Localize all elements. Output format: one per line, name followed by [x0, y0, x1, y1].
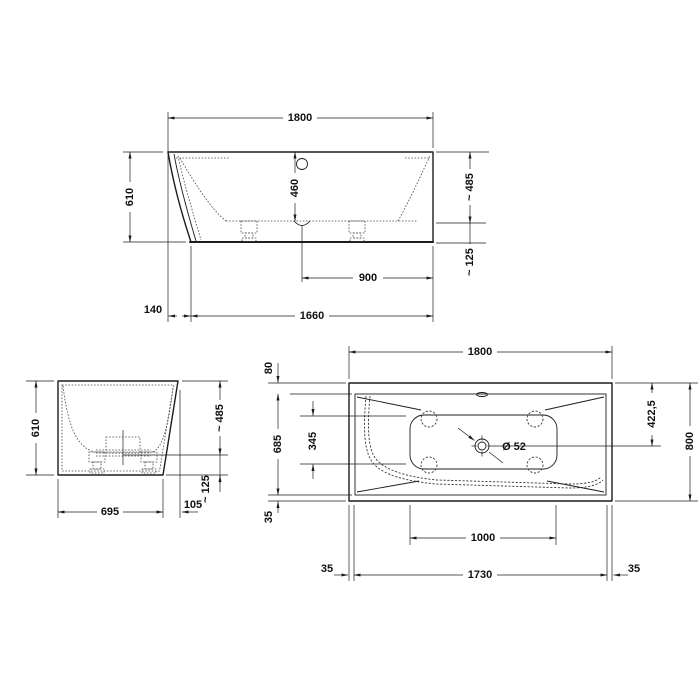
side-length-dim: 1800: [288, 112, 312, 124]
adjustable-foot: [241, 221, 257, 242]
drain-recess: [294, 221, 310, 226]
sloped-front-edge: [168, 152, 191, 242]
inner-wall-left: [180, 158, 226, 221]
end-view-tub-outline: [58, 381, 228, 475]
plan-view-tub-outline: Ø 52: [349, 383, 612, 501]
drain-diameter-label: Ø 52: [502, 441, 526, 453]
end-view: 610 ~ 485 ~ 125 695 105: [26, 381, 228, 518]
drain-leader: [458, 428, 475, 441]
plan-view: Ø 52 1800: [263, 346, 698, 581]
plan-width-dim: 800: [684, 432, 696, 450]
drain-icon: [472, 436, 493, 457]
side-view-tub-outline: [168, 152, 433, 282]
end-side-offset-dim: 105: [184, 499, 202, 511]
side-clearance-dim: ~ 125: [464, 248, 476, 276]
plan-margin-left-dim: 35: [321, 563, 333, 575]
side-rim-height-dim: ~ 485: [464, 173, 476, 201]
side-view: 1800 610 460 ~ 485: [123, 112, 489, 322]
end-rim-height-dim: ~ 485: [214, 404, 226, 432]
side-height-dim: 610: [124, 188, 136, 206]
support-foot: [421, 411, 437, 427]
end-view-dimensions: 610 ~ 485 ~ 125 695 105: [26, 381, 228, 518]
plan-inner-length-dim: 685: [272, 435, 284, 453]
plan-drain-offset-dim: 422,5: [646, 400, 658, 428]
support-foot: [527, 411, 543, 427]
end-height-dim: 610: [30, 419, 42, 437]
side-bottom-length-dim: 1660: [300, 310, 324, 322]
overflow-icon: [477, 393, 488, 397]
end-bottom-width-dim: 695: [101, 506, 119, 518]
plan-margin-right-dim: 35: [628, 563, 640, 575]
inner-wall-right: [398, 156, 430, 221]
support-foot: [421, 457, 437, 473]
inner-rim: [355, 394, 606, 495]
side-view-dimensions: 1800 610 460 ~ 485: [123, 112, 489, 322]
side-depth-dim: 460: [289, 179, 301, 197]
bathtub-dimension-drawing: 1800 610 460 ~ 485: [0, 0, 700, 700]
plan-rim-top-dim: 80: [263, 362, 275, 374]
technical-drawing-page: 1800 610 460 ~ 485: [0, 0, 700, 700]
support-foot: [527, 457, 543, 473]
plan-support-spacing-dim: 1000: [471, 532, 495, 544]
plan-basin-width-dim: 345: [307, 432, 319, 450]
plan-view-dimensions: 1800 80 685 345 35: [263, 346, 698, 581]
overflow-icon: [297, 159, 308, 170]
plan-rim-bottom-dim: 35: [263, 511, 275, 523]
side-drain-offset-dim: 900: [359, 272, 377, 284]
inner-wall-right: [153, 388, 173, 452]
adjustable-foot: [349, 221, 365, 242]
plan-bottom-length-dim: 1730: [468, 569, 492, 581]
inner-wall-left: [63, 386, 94, 452]
adjustable-foot: [89, 452, 105, 473]
plan-length-dim: 1800: [468, 346, 492, 358]
side-front-offset-dim: 140: [144, 304, 162, 316]
